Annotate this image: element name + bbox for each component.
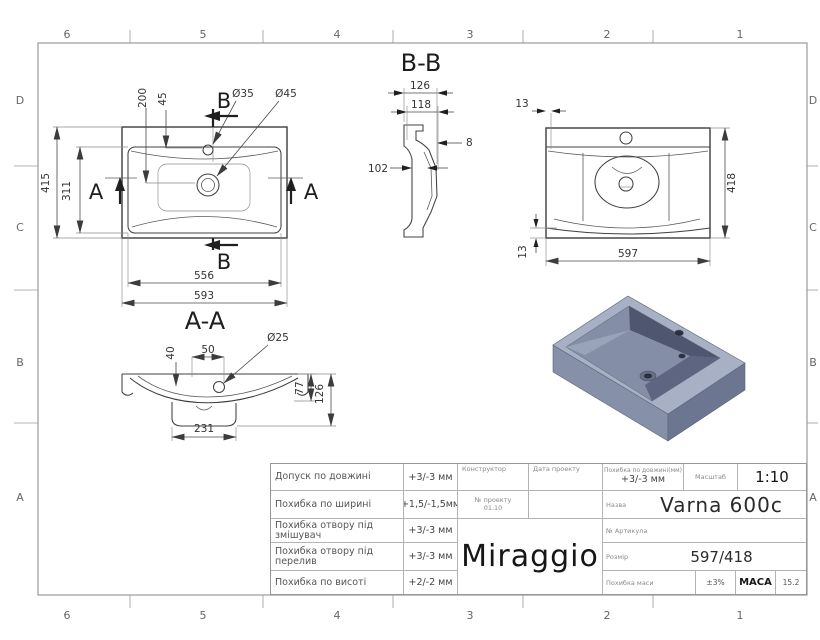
zone-col-label: 1: [737, 609, 744, 622]
tolerance-label: Похибка отвору під змішувач: [271, 519, 404, 543]
section-mark-b-bottom: B: [217, 250, 231, 274]
basin-oval: [595, 156, 659, 208]
scale-label: Масштаб: [684, 464, 738, 491]
mass-tolerance-label: Похибка маси: [603, 571, 696, 594]
zone-col-label: 6: [64, 609, 71, 622]
zone-col-label: 3: [467, 28, 474, 41]
section-bb-view: B-B 126 118 8 102: [368, 49, 473, 237]
zone-row-label: B: [809, 356, 817, 369]
zone-row-label: D: [809, 94, 817, 107]
mass-value: 15.2: [776, 571, 806, 594]
dim-label-45: 45: [157, 92, 169, 105]
dim-label-126: 126: [314, 384, 326, 404]
zone-row-label: A: [16, 491, 24, 504]
dim-label-200: 200: [137, 88, 149, 108]
section-bb-title: B-B: [401, 49, 442, 77]
tolerance-value: +2/-2 мм: [404, 571, 458, 594]
section-mark-a-left: A: [89, 180, 104, 204]
dim-label-13-top: 13: [515, 98, 528, 110]
title-block: Допуск по довжині +3/-3 мм Конструктор Д…: [270, 463, 807, 595]
zone-row-label: D: [16, 94, 24, 107]
zone-col-label: 6: [64, 28, 71, 41]
name-value: Varna 600c: [637, 491, 806, 519]
zone-row-label: C: [16, 221, 24, 234]
tolerance-value: +1,5/-1,5мм: [404, 491, 458, 519]
mass-tolerance-value: ±3%: [696, 571, 736, 594]
section-mark-a-right: A: [304, 180, 319, 204]
dia-label-45: Ø45: [275, 88, 297, 100]
zone-col-label: 3: [467, 609, 474, 622]
brand-logo: Miraggio: [458, 519, 603, 594]
dim-label-311: 311: [61, 181, 73, 201]
name-label: Назва: [603, 491, 637, 519]
zone-col-label: 2: [604, 28, 611, 41]
dim-label-126-bb: 126: [410, 80, 430, 92]
section-aa-view: A-A 40 50 Ø25 77 126 231: [122, 307, 336, 441]
drain-hole-section: [214, 382, 225, 393]
size-label: Розмір: [603, 543, 637, 571]
plan-outline: [122, 127, 287, 238]
tolerance-label: Похибка по ширині: [271, 491, 404, 519]
faucet-hole-3d: [675, 330, 684, 336]
front-view: 13 13 597 418: [515, 98, 738, 266]
dim-label-556: 556: [194, 270, 214, 282]
overflow-hole: [619, 177, 633, 191]
front-outline: [546, 128, 710, 238]
zone-col-label: 2: [604, 609, 611, 622]
zone-col-label: 5: [200, 28, 207, 41]
dim-label-13-bottom: 13: [517, 245, 529, 258]
dim-label-418: 418: [726, 173, 738, 193]
designer-label: Конструктор: [458, 464, 529, 491]
dim-label-102: 102: [368, 163, 388, 175]
tolerance-label: Похибка отвору під перелив: [271, 543, 404, 571]
tolerance-value: +3/-3 мм: [404, 543, 458, 571]
project-value: 01.10: [484, 505, 503, 513]
faucet-hole-front: [620, 132, 632, 144]
scale-value: 1:10: [738, 464, 806, 491]
zone-row-label: B: [16, 356, 24, 369]
zone-col-label: 4: [334, 609, 341, 622]
zone-row-label: C: [809, 221, 817, 234]
dim-label-415: 415: [40, 173, 52, 193]
zone-col-label: 4: [334, 28, 341, 41]
tolerance-value: +3/-3 мм: [404, 519, 458, 543]
empty-cell: [529, 491, 603, 519]
zone-col-label: 1: [737, 28, 744, 41]
section-aa-title: A-A: [185, 307, 226, 335]
drain-hole-3d: [644, 374, 652, 379]
dim-label-231: 231: [194, 423, 214, 435]
date-label: Дата проекту: [529, 464, 603, 491]
dia-label-35: Ø35: [232, 88, 254, 100]
section-mark-b-top: B: [217, 89, 231, 113]
sink-3d-render: [553, 296, 745, 441]
title-block-right-section: Похибка по довжині(мм) +3/-3 мм Масштаб …: [603, 464, 806, 594]
zone-col-label: 5: [200, 609, 207, 622]
dim-label-50: 50: [201, 344, 214, 356]
engineering-drawing-sheet: 6 5 4 3 2 1 6 5 4 3 2 1 D C B A D C B A …: [0, 0, 820, 640]
size-value: 597/418: [637, 543, 806, 571]
dim-label-8: 8: [466, 137, 473, 149]
dim-label-597: 597: [618, 248, 638, 260]
tolerance-value: +3/-3 мм: [404, 464, 458, 491]
tolerance-label: Похибка по висоті: [271, 571, 404, 594]
dia-label-25: Ø25: [267, 332, 289, 344]
drain-hole: [197, 174, 219, 196]
dim-label-593: 593: [194, 290, 214, 302]
plan-view: 415 311 200 45 Ø35 Ø45 B B A A: [40, 88, 319, 307]
zone-row-label: A: [809, 491, 817, 504]
length-tolerance-value: +3/-3 мм: [621, 475, 665, 486]
dim-label-118: 118: [411, 99, 431, 111]
project-number-cell: № проекту 01.10: [458, 491, 529, 519]
dim-label-40: 40: [165, 346, 177, 359]
article-label: № Артикула: [603, 519, 806, 543]
tolerance-label: Допуск по довжині: [271, 464, 404, 491]
overflow-hole-3d: [679, 354, 686, 359]
dim-label-77: 77: [294, 381, 306, 394]
mass-label: МАСА: [736, 571, 776, 594]
